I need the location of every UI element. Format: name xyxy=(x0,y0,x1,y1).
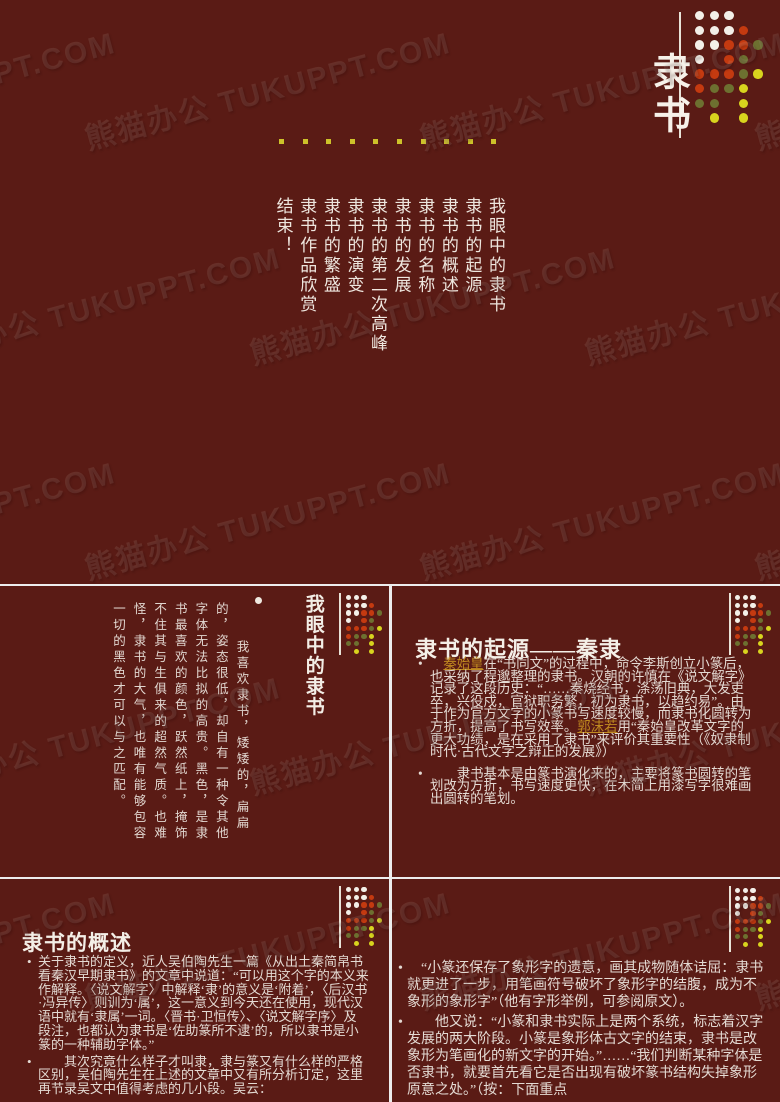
dot xyxy=(766,919,771,924)
divider-line xyxy=(729,593,731,655)
dot xyxy=(743,595,748,600)
dot xyxy=(750,927,755,932)
slide-quotes: • “小篆还保存了象形字的遗意，画其成物随体诘屈：隶书就更进了一步，用笔画符号破… xyxy=(392,879,780,1102)
dot xyxy=(758,911,763,916)
dot xyxy=(369,926,374,931)
dot xyxy=(750,896,755,901)
dot xyxy=(739,84,748,93)
toc-item: 隶书的第二次高峰 xyxy=(365,197,389,354)
dot xyxy=(369,649,374,654)
dot xyxy=(354,918,359,923)
dot xyxy=(346,618,351,623)
dot xyxy=(743,888,748,893)
dot xyxy=(758,903,763,908)
dot xyxy=(695,99,704,108)
bullet-list: • “小篆还保存了象形字的遗意，画其成物随体诘屈：隶书就更进了一步，用笔画符号破… xyxy=(398,961,766,1099)
dot xyxy=(735,641,740,646)
dot xyxy=(361,887,366,892)
square-marker xyxy=(303,139,308,144)
dot xyxy=(354,926,359,931)
dot xyxy=(743,942,748,947)
dot xyxy=(361,902,366,907)
dot xyxy=(724,69,733,78)
bullet-icon: • xyxy=(418,768,423,781)
dot xyxy=(354,634,359,639)
dot xyxy=(361,618,366,623)
dot xyxy=(739,113,748,122)
dot xyxy=(750,595,755,600)
dot xyxy=(354,649,359,654)
dot xyxy=(743,641,748,646)
dot xyxy=(743,634,748,639)
divider-line xyxy=(339,593,341,655)
dot xyxy=(750,610,755,615)
cover-title: 隶书 xyxy=(640,52,695,138)
dot xyxy=(346,595,351,600)
square-marker xyxy=(421,139,426,144)
bullet-list: • 秦始皇在“书同文”的过程中，命令李斯创立小篆后，也采纳了程邈整理的隶书。汉朝… xyxy=(418,658,754,806)
dot-matrix-decoration xyxy=(346,887,382,947)
dot xyxy=(743,919,748,924)
bullet-text: 其次究竟什么样子才叫隶，隶与篆又有什么样的严格区别，吴伯陶先生在上述的文章中又有… xyxy=(38,1054,363,1097)
dot xyxy=(743,603,748,608)
dot xyxy=(361,603,366,608)
dot xyxy=(758,649,763,654)
dot xyxy=(758,626,763,631)
divider-line xyxy=(729,886,731,952)
dot xyxy=(695,55,704,64)
dot xyxy=(354,610,359,615)
dot xyxy=(739,69,748,78)
dot xyxy=(735,896,740,901)
dot xyxy=(361,610,366,615)
dot xyxy=(735,595,740,600)
dot xyxy=(695,11,704,20)
dot xyxy=(750,888,755,893)
toc-item: 隶书的起源 xyxy=(460,197,484,354)
dot xyxy=(710,26,719,35)
dot xyxy=(724,40,733,49)
dot xyxy=(377,918,382,923)
dot xyxy=(361,634,366,639)
dot xyxy=(743,934,748,939)
dot xyxy=(753,69,762,78)
dot xyxy=(377,626,382,631)
bullet-list: •关于隶书的定义，近人吴伯陶先生一篇《从出土秦简帛书看秦汉早期隶书》的文章中说道… xyxy=(27,955,369,1096)
table-of-contents: 我眼中的隶书隶书的起源隶书的概述隶书的名称隶书的发展隶书的第二次高峰隶书的演变隶… xyxy=(271,197,507,354)
divider-line xyxy=(339,886,341,948)
dot xyxy=(361,895,366,900)
dot xyxy=(735,919,740,924)
dot xyxy=(354,641,359,646)
dot xyxy=(739,40,748,49)
dot xyxy=(758,641,763,646)
bullet-icon: • xyxy=(398,1015,403,1032)
square-marker xyxy=(326,139,331,144)
dot xyxy=(758,634,763,639)
dot xyxy=(724,11,733,20)
dot xyxy=(724,55,733,64)
ppt-preview-page: 隶书 我眼中的隶书隶书的起源隶书的概述隶书的名称隶书的发展隶书的第二次高峰隶书的… xyxy=(0,0,780,1102)
bullet-text: 关于隶书的定义，近人吴伯陶先生一篇《从出土秦简帛书看秦汉早期隶书》的文章中说道：… xyxy=(38,954,369,1052)
dot xyxy=(361,910,366,915)
dot xyxy=(346,902,351,907)
dot xyxy=(354,902,359,907)
plain-text: 隶书基本是由篆书演化来的，主要将篆书圆转的笔划改为方折，书写速度更快，在木简上用… xyxy=(430,766,751,806)
slide-origin-qinli: 隶书的起源——秦隶 • 秦始皇在“书同文”的过程中，命令李斯创立小篆后，也采纳了… xyxy=(392,586,780,877)
dot xyxy=(369,941,374,946)
bullet-icon: • xyxy=(27,955,32,969)
slide-separator-vertical xyxy=(389,586,392,1102)
dot xyxy=(354,887,359,892)
dot xyxy=(739,99,748,108)
bullet-item: • 其次究竟什么样子才叫隶，隶与篆又有什么样的严格区别，吴伯陶先生在上述的文章中… xyxy=(27,1055,369,1096)
slide-title: 隶书的概述 xyxy=(22,927,132,957)
dot xyxy=(750,603,755,608)
dot xyxy=(369,610,374,615)
slide-title: 我眼中的隶书 xyxy=(300,594,327,717)
dot xyxy=(750,919,755,924)
dot xyxy=(758,618,763,623)
dot xyxy=(346,641,351,646)
dot xyxy=(354,626,359,631)
dot xyxy=(739,55,748,64)
dot xyxy=(369,641,374,646)
slide-overview: 隶书的概述 •关于隶书的定义，近人吴伯陶先生一篇《从出土秦简帛书看秦汉早期隶书》… xyxy=(0,879,389,1102)
dot xyxy=(346,895,351,900)
dot xyxy=(361,595,366,600)
dot xyxy=(735,610,740,615)
dot xyxy=(369,634,374,639)
dot xyxy=(346,933,351,938)
dot xyxy=(346,918,351,923)
toc-item: 结束！ xyxy=(271,197,295,354)
dot xyxy=(743,903,748,908)
dot xyxy=(354,895,359,900)
dot xyxy=(369,618,374,623)
dot xyxy=(369,933,374,938)
dot xyxy=(354,603,359,608)
dot xyxy=(361,926,366,931)
dot xyxy=(710,69,719,78)
dot xyxy=(369,902,374,907)
toc-item: 我眼中的隶书 xyxy=(483,197,507,354)
toc-item: 隶书的演变 xyxy=(342,197,366,354)
dot xyxy=(346,610,351,615)
dot xyxy=(758,942,763,947)
square-marker xyxy=(350,139,355,144)
dot xyxy=(346,603,351,608)
dot xyxy=(739,26,748,35)
dot xyxy=(377,610,382,615)
dot xyxy=(695,26,704,35)
dot xyxy=(766,903,771,908)
dot xyxy=(735,618,740,623)
square-marker xyxy=(397,139,402,144)
square-marker xyxy=(444,139,449,144)
toc-item: 隶书作品欣赏 xyxy=(295,197,319,354)
dot xyxy=(758,927,763,932)
dot xyxy=(695,69,704,78)
toc-item: 隶书的繁盛 xyxy=(318,197,342,354)
bullet-item: • 秦始皇在“书同文”的过程中，命令李斯创立小篆后，也采纳了程邈整理的隶书。汉朝… xyxy=(418,658,754,759)
dot xyxy=(750,626,755,631)
bullet-text: 秦始皇在“书同文”的过程中，命令李斯创立小篆后，也采纳了程邈整理的隶书。汉朝的许… xyxy=(430,656,751,759)
bullet-item: • 隶书基本是由篆书演化来的，主要将篆书圆转的笔划改为方折，书写速度更快，在木简… xyxy=(418,768,754,806)
toc-item: 隶书的概述 xyxy=(436,197,460,354)
dot xyxy=(743,610,748,615)
dot xyxy=(710,84,719,93)
dot xyxy=(766,626,771,631)
dot xyxy=(735,927,740,932)
dot xyxy=(724,84,733,93)
dot xyxy=(377,902,382,907)
bullet-icon xyxy=(255,597,262,604)
dot xyxy=(354,941,359,946)
dot-matrix-decoration xyxy=(346,595,382,655)
dot xyxy=(361,626,366,631)
dot xyxy=(710,99,719,108)
dot xyxy=(743,927,748,932)
dot xyxy=(758,603,763,608)
dot xyxy=(735,634,740,639)
dot xyxy=(346,626,351,631)
dot xyxy=(750,618,755,623)
bullet-icon: • xyxy=(398,961,403,978)
square-marker-row xyxy=(279,139,496,144)
dot xyxy=(369,626,374,631)
bullet-item: • 他又说：“小篆和隶书实际上是两个系统，标志着汉字发展的两大阶段。小篆是象形体… xyxy=(398,1015,766,1099)
dot xyxy=(750,911,755,916)
toc-item: 隶书的名称 xyxy=(413,197,437,354)
dot xyxy=(695,84,704,93)
dot xyxy=(743,649,748,654)
dot xyxy=(354,595,359,600)
bullet-icon: • xyxy=(418,658,423,671)
dot xyxy=(758,934,763,939)
bullet-icon: • xyxy=(27,1055,32,1069)
dot xyxy=(710,40,719,49)
dot xyxy=(369,910,374,915)
bullet-item: • “小篆还保存了象形字的遗意，画其成物随体诘屈：隶书就更进了一步，用笔画符号破… xyxy=(398,961,766,1011)
dot xyxy=(346,926,351,931)
dot xyxy=(743,896,748,901)
dot xyxy=(354,933,359,938)
dot xyxy=(758,610,763,615)
dot xyxy=(369,603,374,608)
square-marker xyxy=(468,139,473,144)
dot xyxy=(735,626,740,631)
square-marker xyxy=(373,139,378,144)
bullet-text: 隶书基本是由篆书演化来的，主要将篆书圆转的笔划改为方折，书写速度更快，在木简上用… xyxy=(430,766,751,806)
slide-my-view: 我眼中的隶书 我喜欢隶书，矮矮的，扁扁的，姿态很低，却自有一种令其他字体无法比拟… xyxy=(0,586,389,877)
slide-cover: 隶书 我眼中的隶书隶书的起源隶书的概述隶书的名称隶书的发展隶书的第二次高峰隶书的… xyxy=(0,0,780,584)
dot xyxy=(695,40,704,49)
dot xyxy=(743,626,748,631)
dot xyxy=(735,903,740,908)
dot xyxy=(735,603,740,608)
dot xyxy=(735,911,740,916)
dot xyxy=(369,918,374,923)
bullet-text: “小篆还保存了象形字的遗意，画其成物随体诘屈：隶书就更进了一步，用笔画符号破坏了… xyxy=(407,961,763,1010)
dot xyxy=(753,40,762,49)
dot-matrix-decoration xyxy=(735,595,771,655)
dot xyxy=(710,113,719,122)
dot xyxy=(750,634,755,639)
dot-matrix-decoration xyxy=(695,11,763,124)
bullet-item: •关于隶书的定义，近人吴伯陶先生一篇《从出土秦简帛书看秦汉早期隶书》的文章中说道… xyxy=(27,955,369,1052)
toc-item: 隶书的发展 xyxy=(389,197,413,354)
dot xyxy=(346,910,351,915)
square-marker xyxy=(491,139,496,144)
vertical-body-text: 我喜欢隶书，矮矮的，扁扁的，姿态很低，却自有一种令其他字体无法比拟的高贵。黑色，… xyxy=(107,602,251,842)
dot xyxy=(710,11,719,20)
dot xyxy=(750,903,755,908)
bullet-text: 他又说：“小篆和隶书实际上是两个系统，标志着汉字发展的两大阶段。小篆是象形体古文… xyxy=(407,1015,763,1097)
dot xyxy=(346,887,351,892)
dot xyxy=(724,26,733,35)
dot xyxy=(735,934,740,939)
dot-matrix-decoration xyxy=(735,888,771,948)
dot xyxy=(361,918,366,923)
dot xyxy=(758,896,763,901)
square-marker xyxy=(279,139,284,144)
dot xyxy=(369,895,374,900)
dot xyxy=(735,888,740,893)
dot xyxy=(766,610,771,615)
dot xyxy=(758,919,763,924)
dot xyxy=(346,634,351,639)
